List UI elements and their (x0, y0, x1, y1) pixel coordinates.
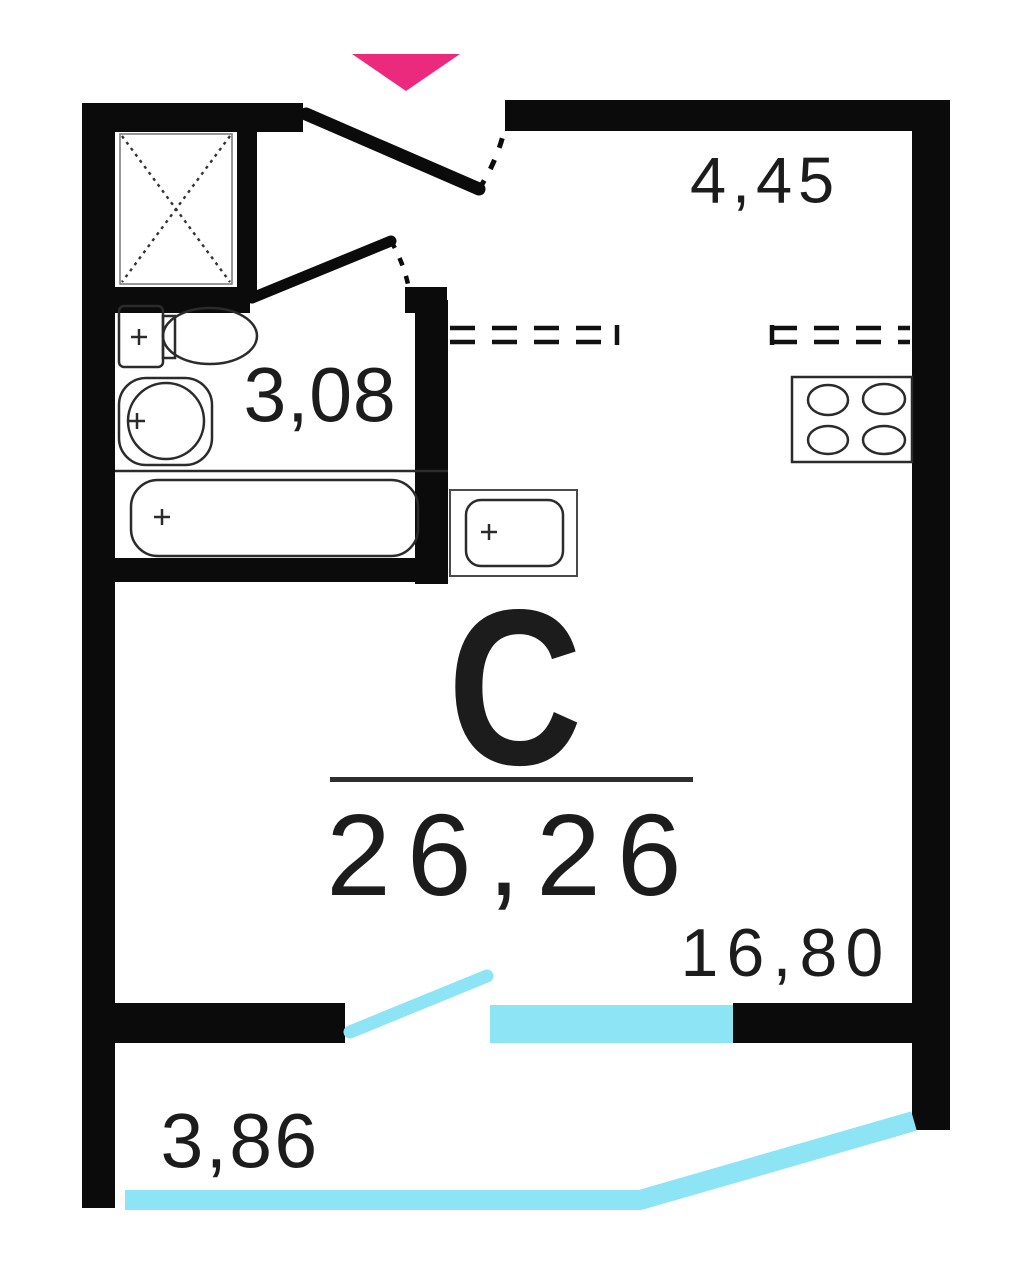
wall-window-right (733, 1003, 912, 1043)
entrance-arrow-icon (352, 54, 460, 91)
bathtub-outline (131, 480, 418, 556)
toilet-cross-mark (131, 329, 147, 345)
bathtub-cross-mark (154, 509, 170, 525)
apartment-type-label: С (448, 577, 583, 799)
total-area-label: 26,26 (326, 797, 697, 913)
floor-plan: 4,45 3,08 С 26,26 16,80 3,86 (0, 0, 1031, 1280)
balcony-area-label: 3,86 (160, 1104, 319, 1181)
bathtub-icon (115, 471, 448, 556)
kitchen-hall-area-label: 4,45 (690, 148, 840, 213)
stove-burner-3 (808, 426, 848, 454)
wall-bathroom-right (415, 300, 448, 584)
duct-dashed-lines (450, 325, 910, 345)
stove-burner-2 (863, 384, 905, 414)
entrance-door-leaf (306, 114, 479, 189)
bathroom-door-swing-arc (391, 241, 409, 289)
ventilation-shaft-icon (120, 134, 232, 284)
wall-top-left (82, 103, 303, 132)
toilet-icon (119, 306, 257, 367)
entrance-door-swing-arc (479, 132, 504, 189)
living-room-area-label: 16,80 (681, 919, 892, 987)
type-area-fraction-rule (330, 777, 693, 782)
washbasin-icon (119, 378, 212, 465)
wall-right (912, 100, 950, 1130)
stove-burner-1 (808, 385, 848, 415)
wall-top-right (505, 100, 950, 131)
kitchen-sink-bowl (466, 500, 563, 566)
wall-bathroom-top (115, 287, 250, 313)
balcony-door-leaf (350, 976, 487, 1032)
stove-burner-4 (863, 426, 905, 454)
washbasin-cross-mark (129, 413, 145, 429)
stove-outline (792, 377, 912, 462)
kitchen-sink-cross-mark (481, 524, 497, 540)
bathroom-area-label: 3,08 (244, 358, 397, 435)
window-glazing-band (490, 1005, 733, 1043)
stove-4-burner-icon (792, 377, 912, 462)
wall-window-left (82, 1003, 345, 1043)
wall-shaft-partition (237, 132, 257, 300)
wall-bathroom-bottom (115, 558, 448, 582)
bathroom-door-leaf (252, 241, 391, 298)
